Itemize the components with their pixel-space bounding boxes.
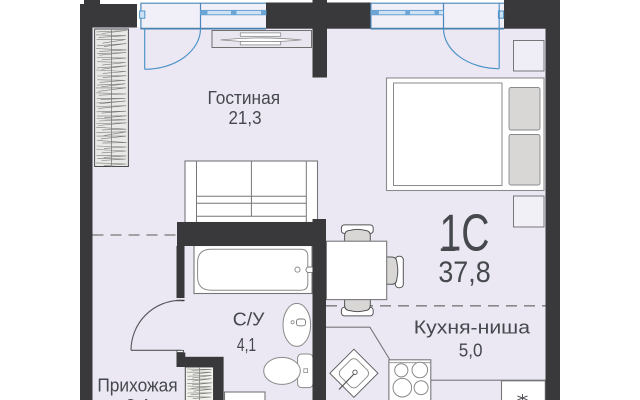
svg-text:21,3: 21,3 (229, 107, 262, 128)
svg-text:1С: 1С (440, 205, 490, 263)
svg-text:Прихожая: Прихожая (97, 375, 177, 396)
svg-text:5,0: 5,0 (459, 339, 483, 360)
svg-text:37,8: 37,8 (438, 256, 490, 289)
svg-text:Гостиная: Гостиная (208, 87, 281, 108)
svg-text:Кухня-ниша: Кухня-ниша (414, 316, 531, 337)
svg-text:С/У: С/У (233, 309, 265, 330)
svg-text:4,1: 4,1 (237, 334, 256, 355)
svg-text:3,4: 3,4 (126, 395, 150, 400)
